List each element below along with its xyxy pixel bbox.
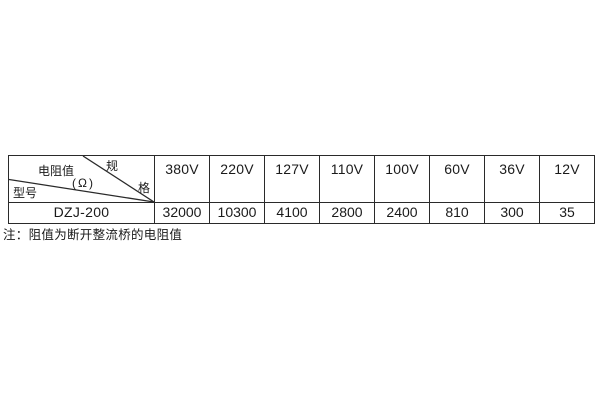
corner-label-resistance: 电阻值 [38,165,74,177]
resistance-value-380v: 32000 [154,203,209,223]
corner-label-spec-char2: 格 [138,182,150,194]
column-header-110v: 110V [319,156,374,203]
corner-label-ohm-unit: (Ω) [72,177,95,189]
column-header-100v: 100V [374,156,429,203]
page: 规 格 电阻值 (Ω) 型号 380V 220V 127V 110V 100V … [0,0,600,400]
resistance-value-36v: 300 [484,203,539,223]
resistance-value-60v: 810 [429,203,484,223]
resistance-value-12v: 35 [539,203,594,223]
column-header-36v: 36V [484,156,539,203]
resistance-spec-table: 规 格 电阻值 (Ω) 型号 380V 220V 127V 110V 100V … [8,155,595,224]
resistance-value-220v: 10300 [209,203,264,223]
corner-label-model: 型号 [13,187,37,199]
column-header-12v: 12V [539,156,594,203]
resistance-value-110v: 2800 [319,203,374,223]
column-header-220v: 220V [209,156,264,203]
column-header-127v: 127V [264,156,319,203]
footnote: 注：阻值为断开整流桥的电阻值 [3,228,182,243]
column-header-380v: 380V [154,156,209,203]
diagonal-corner-header-cell: 规 格 电阻值 (Ω) 型号 [9,156,154,203]
corner-label-spec-char1: 规 [106,160,118,172]
model-cell: DZJ-200 [9,203,154,223]
resistance-value-100v: 2400 [374,203,429,223]
resistance-value-127v: 4100 [264,203,319,223]
column-header-60v: 60V [429,156,484,203]
